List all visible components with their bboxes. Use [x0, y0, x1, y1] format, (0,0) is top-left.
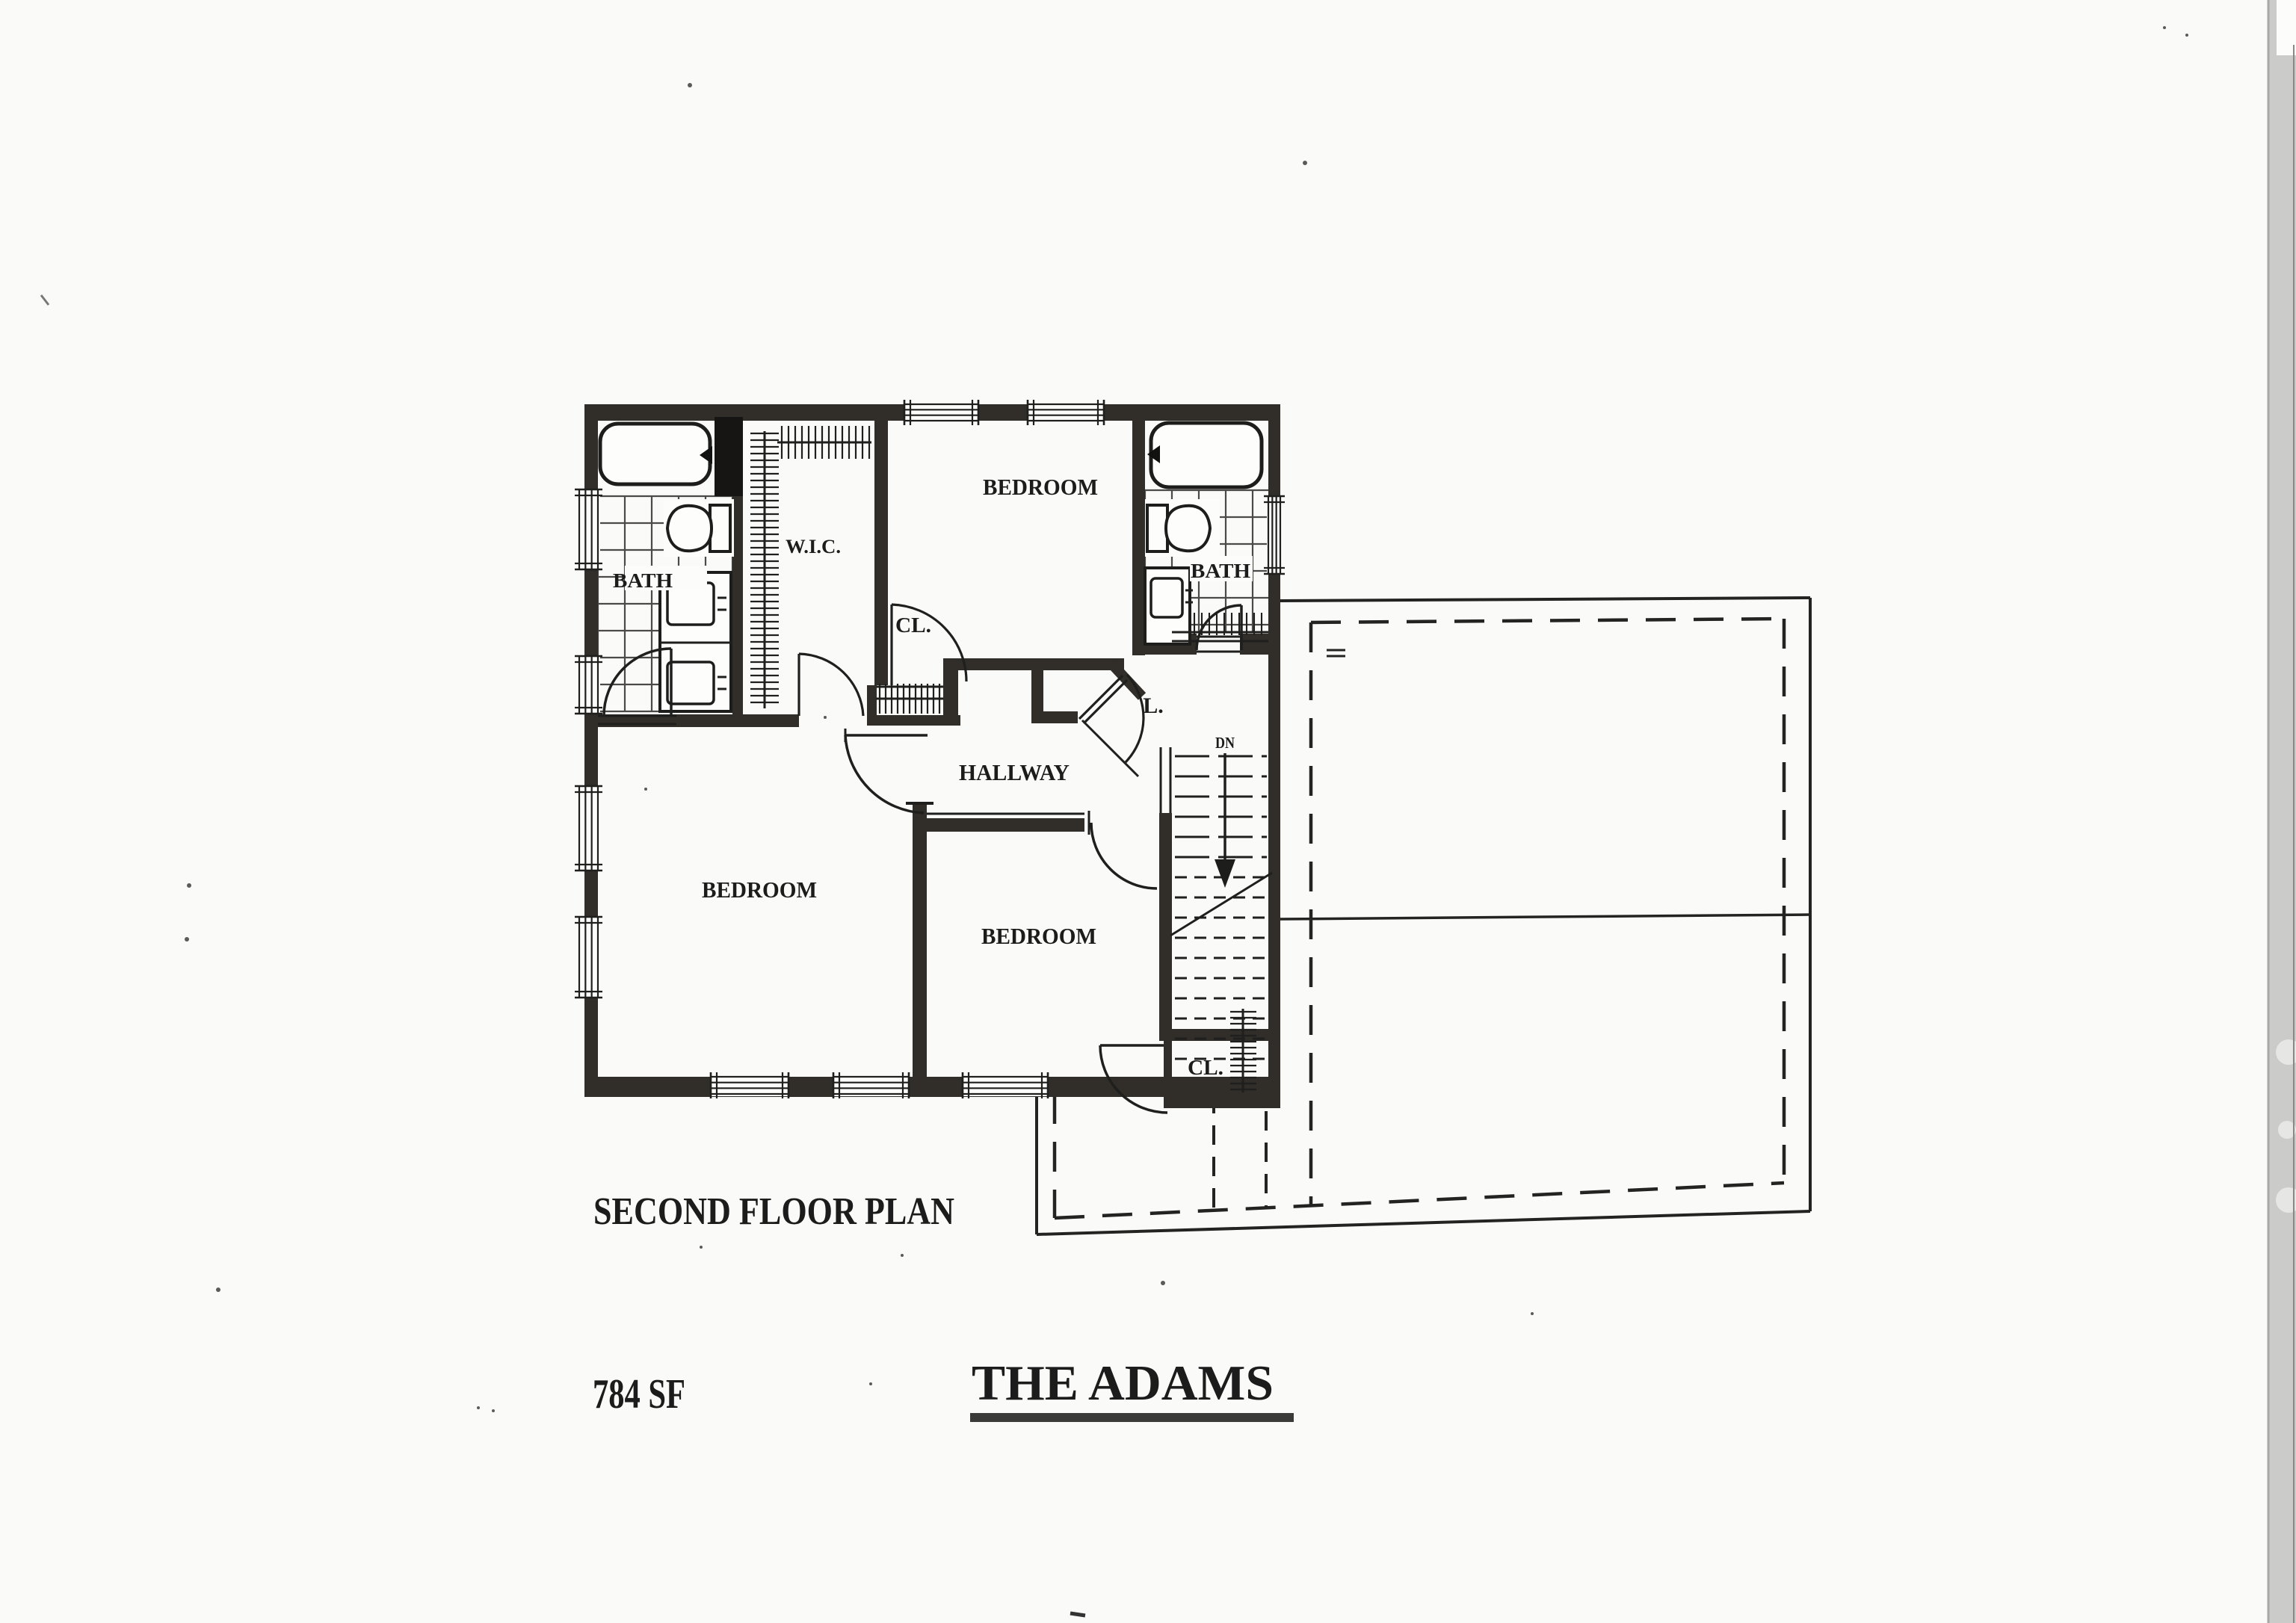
svg-text:BEDROOM: BEDROOM [981, 923, 1096, 949]
svg-text:SECOND FLOOR PLAN: SECOND FLOOR PLAN [593, 1190, 954, 1233]
svg-text:784 SF: 784 SF [593, 1371, 685, 1418]
svg-text:BEDROOM: BEDROOM [983, 474, 1098, 500]
svg-text:CL.: CL. [1188, 1057, 1223, 1080]
svg-text:BATH: BATH [1191, 560, 1250, 582]
svg-text:L.: L. [1143, 693, 1164, 718]
svg-text:CL.: CL. [895, 614, 931, 637]
svg-text:THE ADAMS: THE ADAMS [972, 1355, 1274, 1411]
svg-text:BATH: BATH [613, 569, 673, 592]
svg-text:BEDROOM: BEDROOM [702, 877, 817, 903]
svg-text:DN: DN [1215, 734, 1235, 752]
svg-text:HALLWAY: HALLWAY [959, 759, 1070, 785]
svg-text:W.I.C.: W.I.C. [786, 536, 841, 557]
